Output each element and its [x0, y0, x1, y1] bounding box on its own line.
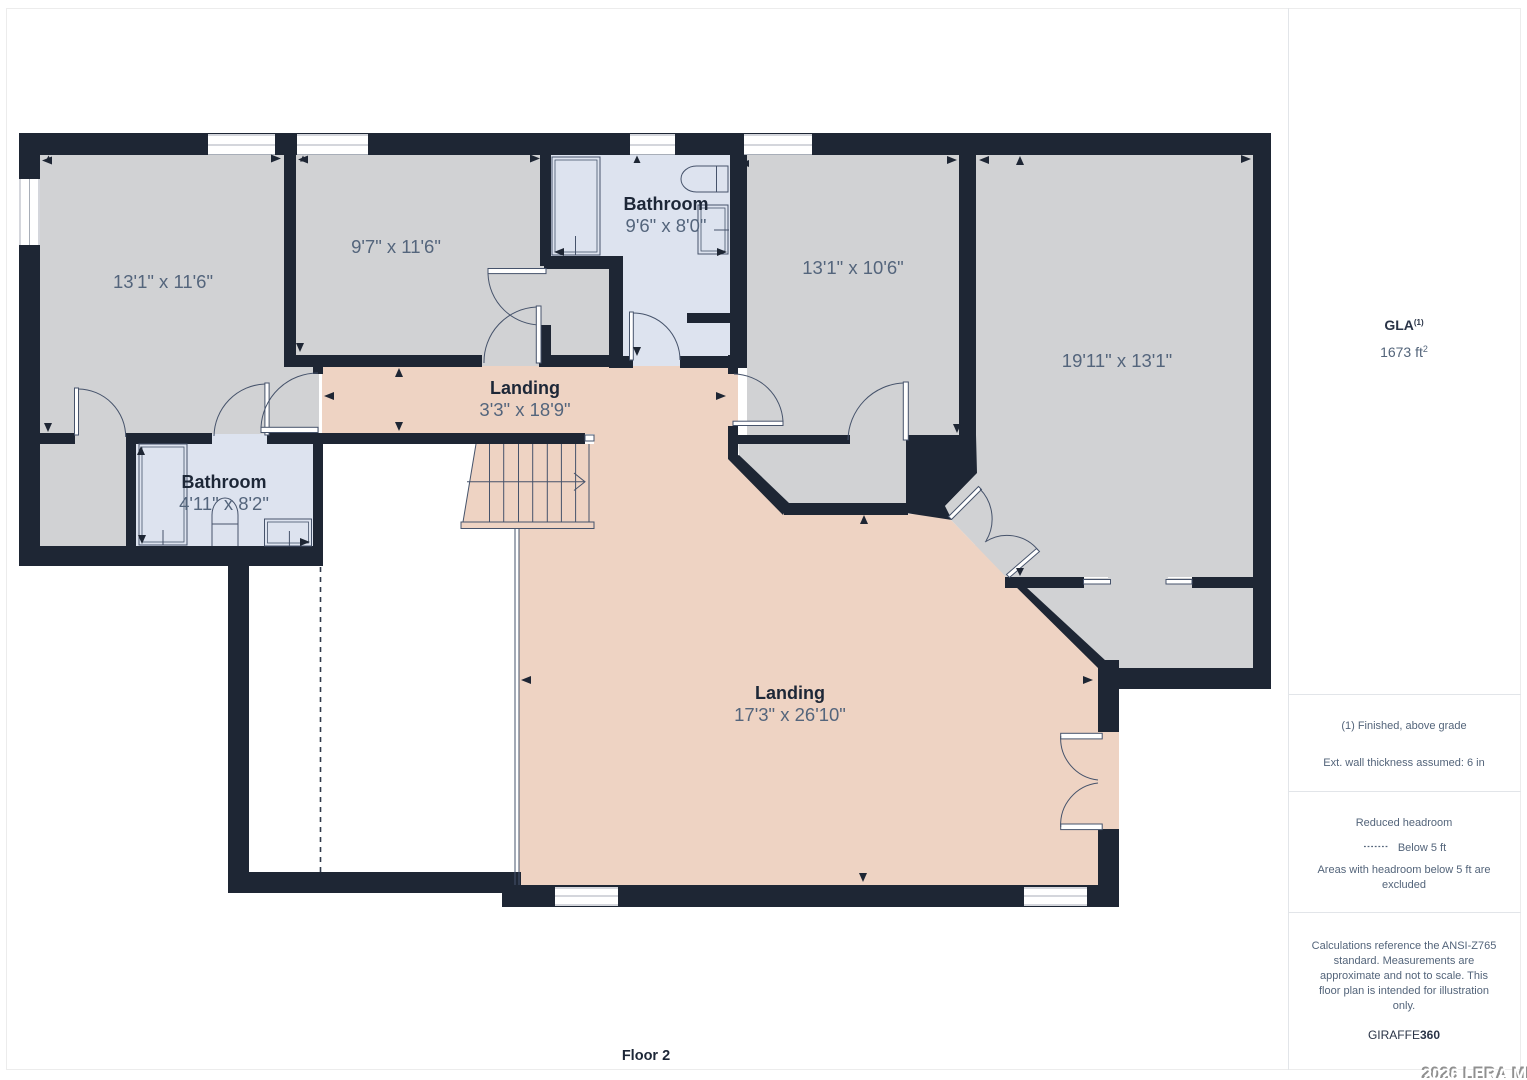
svg-text:9'7" x 11'6": 9'7" x 11'6": [351, 236, 441, 257]
svg-text:19'11" x 13'1": 19'11" x 13'1": [1062, 350, 1172, 371]
svg-text:1673 ft2: 1673 ft2: [1380, 344, 1428, 360]
svg-text:Calculations reference the ANS: Calculations reference the ANSI-Z765: [1312, 940, 1497, 952]
svg-text:2026 LERA MLS: 2026 LERA MLS: [1423, 1066, 1527, 1080]
svg-text:13'1" x 10'6": 13'1" x 10'6": [802, 257, 903, 278]
svg-text:Bathroom: Bathroom: [624, 194, 709, 214]
svg-text:only.: only.: [1393, 1000, 1415, 1012]
svg-text:excluded: excluded: [1382, 879, 1426, 891]
svg-text:(1) Finished, above grade: (1) Finished, above grade: [1341, 720, 1466, 732]
svg-text:4'11" x 8'2": 4'11" x 8'2": [179, 493, 269, 514]
svg-text:approximate and not to scale.: approximate and not to scale. This: [1320, 970, 1488, 982]
svg-text:Bathroom: Bathroom: [182, 472, 267, 492]
svg-text:Ext. wall thickness assumed: 6: Ext. wall thickness assumed: 6 in: [1323, 757, 1484, 769]
svg-text:13'1" x 11'6": 13'1" x 11'6": [113, 271, 213, 292]
svg-text:floor plan is intended for ill: floor plan is intended for illustration: [1319, 985, 1489, 997]
svg-text:Floor 2: Floor 2: [622, 1048, 670, 1064]
svg-text:GIRAFFE360: GIRAFFE360: [1368, 1028, 1440, 1042]
svg-text:3'3" x 18'9": 3'3" x 18'9": [479, 399, 570, 420]
svg-text:Landing: Landing: [755, 683, 825, 703]
svg-text:17'3" x 26'10": 17'3" x 26'10": [734, 704, 846, 725]
svg-text:Reduced headroom: Reduced headroom: [1356, 817, 1453, 829]
svg-text:standard. Measurements are: standard. Measurements are: [1334, 955, 1475, 967]
svg-text:Areas with headroom below 5 ft: Areas with headroom below 5 ft are: [1317, 864, 1490, 876]
svg-text:Below 5 ft: Below 5 ft: [1398, 842, 1446, 854]
svg-text:Landing: Landing: [490, 378, 560, 398]
svg-text:9'6" x 8'0": 9'6" x 8'0": [626, 215, 707, 236]
